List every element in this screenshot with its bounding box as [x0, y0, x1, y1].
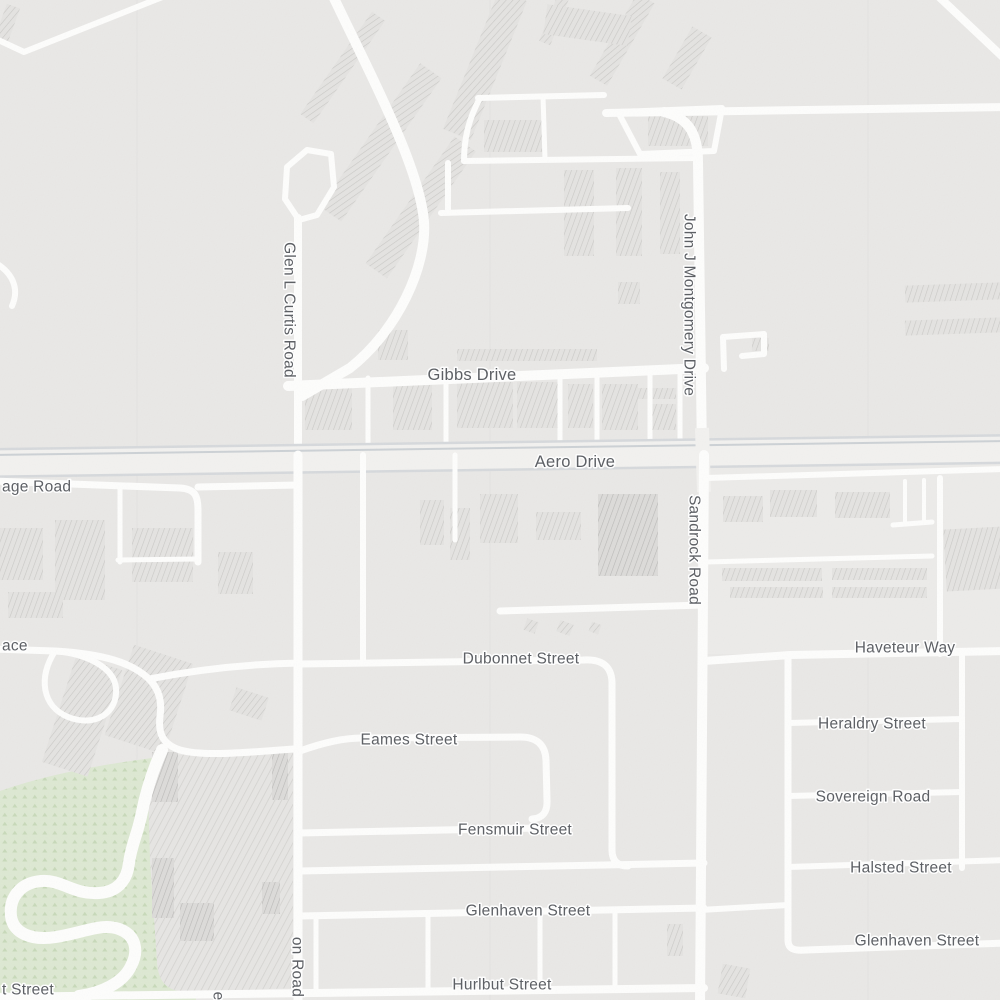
noise-overlay — [0, 0, 1000, 1000]
map-viewport[interactable]: Gibbs Drive Aero Drive age Road ace Dubo… — [0, 0, 1000, 1000]
map-canvas[interactable]: Gibbs Drive Aero Drive age Road ace Dubo… — [0, 0, 1000, 1000]
